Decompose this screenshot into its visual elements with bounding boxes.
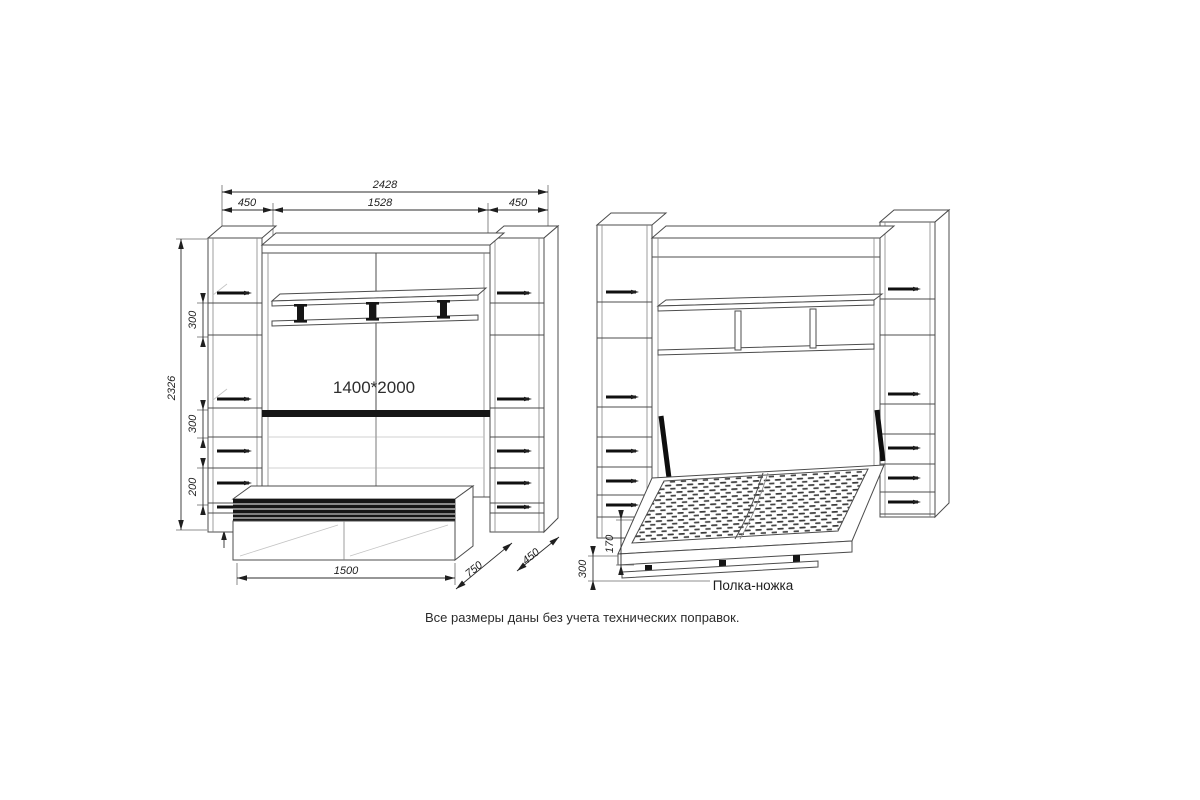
open-bed: Полка-ножка <box>618 465 884 593</box>
closed-right-cabinet <box>490 226 558 532</box>
open-niche <box>652 226 894 490</box>
dim-left-section-label: 450 <box>238 197 257 209</box>
closed-bed-box <box>233 486 473 560</box>
dim-lower-shelf-gap-label: 300 <box>187 414 199 433</box>
dim-bed-box-width-label: 1500 <box>334 565 359 577</box>
leg-shelf-label: Полка-ножка <box>713 578 794 593</box>
dim-total-height-label: 2326 <box>166 375 178 401</box>
drawing-note: Все размеры даны без учета технических п… <box>425 610 739 625</box>
dim-upper-shelf-gap-label: 300 <box>187 310 199 329</box>
furniture-drawing-page: 2428 450 1528 450 2326 <box>0 0 1200 800</box>
wall-bed-technical-drawing: 2428 450 1528 450 2326 <box>0 0 1200 800</box>
dim-bed-box-depth-label: 750 <box>463 559 486 580</box>
niche-cubby-shelf <box>658 294 882 355</box>
dim-middle-section-label: 1528 <box>368 197 393 209</box>
closed-centre-section: 1400*2000 <box>262 233 504 497</box>
bed-pivot-band <box>262 410 490 417</box>
dim-drawer-section-label: 200 <box>187 477 199 497</box>
open-right-cabinet <box>880 210 949 517</box>
closed-view-drawing: 2428 450 1528 450 2326 <box>166 179 561 591</box>
dim-leg-shelf-height-label: 300 <box>577 559 589 578</box>
lift-piston-left <box>655 416 672 480</box>
dim-total-width-label: 2428 <box>372 179 398 191</box>
dim-frame-height-label: 170 <box>604 534 616 553</box>
bed-size-label: 1400*2000 <box>333 378 415 397</box>
open-view-drawing: Полка-ножка 170 300 <box>577 210 949 593</box>
dim-bed-box-width: 1500 <box>237 563 455 585</box>
dim-right-section-label: 450 <box>509 197 528 209</box>
